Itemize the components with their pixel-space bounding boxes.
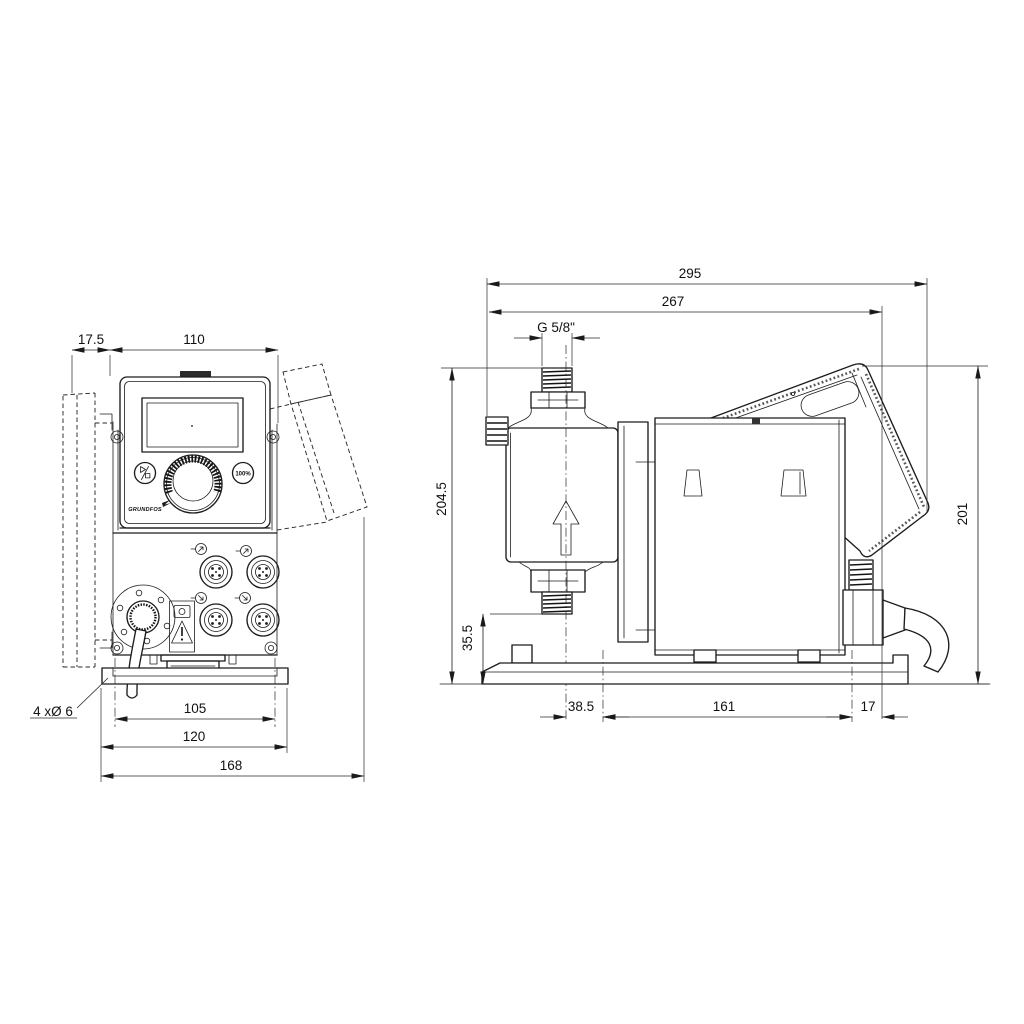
- outlet-thread: [542, 592, 572, 614]
- dim-295: 295: [679, 266, 702, 281]
- hole-callout: 4 xØ 6: [33, 704, 73, 719]
- baseplate-front: [102, 668, 288, 684]
- dim-35-5: 35.5: [460, 625, 475, 651]
- dim-267: 267: [662, 294, 685, 309]
- inlet-thread: [542, 368, 572, 392]
- dim-105: 105: [184, 701, 207, 716]
- dim-thread: G 5/8": [537, 320, 575, 335]
- dim-17-5: 17.5: [78, 332, 104, 347]
- dim-38-5: 38.5: [568, 699, 594, 714]
- deaeration-knob[interactable]: [486, 417, 508, 445]
- dim-168: 168: [220, 758, 243, 773]
- power-cable: [127, 629, 146, 698]
- button-100-label: 100%: [235, 472, 251, 478]
- pump-head-body: [506, 428, 618, 562]
- dim-110: 110: [183, 332, 205, 347]
- brand-logo-text: GRUNDFOS: [128, 507, 162, 513]
- dim-120: 120: [183, 729, 206, 744]
- dim-204-5: 204.5: [434, 482, 449, 516]
- side-view: 295 267 G 5/8" 204.5 35.5 201 38.5 161: [434, 266, 990, 722]
- dim-161: 161: [713, 699, 736, 714]
- connector-socket: [247, 604, 279, 636]
- connector-socket: [247, 556, 279, 588]
- connector-socket: [200, 556, 232, 588]
- drive-housing: [655, 418, 845, 662]
- connector-socket: [200, 604, 232, 636]
- dim-17: 17: [860, 699, 875, 714]
- front-view: 100% GRUNDFOS: [30, 332, 367, 782]
- head-flange-plate: [618, 422, 655, 642]
- control-panel: 100% GRUNDFOS: [120, 371, 270, 528]
- power-cable-side: [904, 608, 949, 672]
- dim-201: 201: [955, 503, 970, 526]
- technical-drawing: 100% GRUNDFOS: [0, 0, 1024, 1024]
- strain-relief-cone: [883, 600, 905, 638]
- phantom-cover: [270, 364, 367, 530]
- wall-bracket-phantom: [63, 393, 112, 667]
